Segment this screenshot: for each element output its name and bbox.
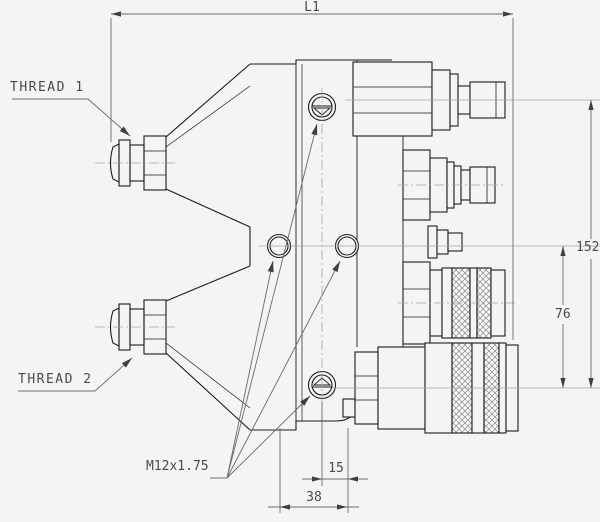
thread2-label: THREAD 2 [18,373,93,386]
coupler-row-3 [428,226,462,258]
technical-drawing: THREAD 1 THREAD 2 M12x1.75 L1 152 76 15 … [0,0,600,522]
dim-15-label: 15 [328,462,344,475]
part-view [111,60,519,433]
centerlines [95,88,600,404]
dim-152-label: 152 [576,241,599,254]
drawing-canvas [0,0,600,522]
thread1-label: THREAD 1 [10,81,85,94]
dimension-lines [12,11,594,513]
coupler-row-1 [353,62,505,136]
dim-l1-label: L1 [304,1,320,14]
leader-thread1 [12,99,132,138]
dim-76-label: 76 [555,308,571,321]
leader-m12 [210,123,343,478]
dim-38-label: 38 [306,491,322,504]
m12-thread-label: M12x1.75 [146,460,209,473]
